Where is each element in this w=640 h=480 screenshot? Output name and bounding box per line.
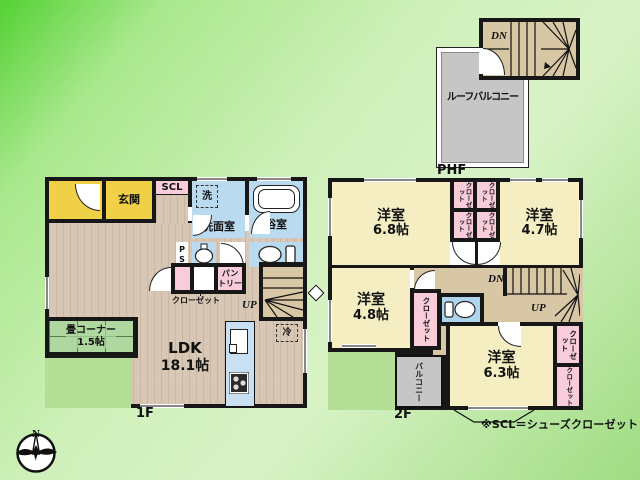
vent-diamond bbox=[308, 285, 325, 302]
stairs-1f bbox=[263, 267, 303, 317]
window bbox=[45, 277, 49, 309]
room-48: 洋室 4.8帖 bbox=[332, 268, 410, 348]
closet-2f: クローゼット bbox=[477, 212, 496, 238]
tatami-size-label: 1.5帖 bbox=[66, 337, 116, 349]
room-48-size: 4.8帖 bbox=[353, 309, 389, 324]
phf-dn-label: DN bbox=[491, 30, 507, 42]
window bbox=[303, 329, 307, 373]
closet-label: クローゼット bbox=[456, 182, 471, 208]
room-genkan: 玄関 bbox=[106, 181, 152, 219]
scl-label: SCL bbox=[162, 182, 183, 194]
window bbox=[342, 344, 376, 348]
window bbox=[328, 300, 332, 342]
kitchen-sink-icon bbox=[230, 329, 248, 354]
room-63-name: 洋室 bbox=[483, 350, 519, 366]
closet-label: クローゼット bbox=[421, 297, 430, 342]
window bbox=[364, 178, 416, 182]
floor-plan-canvas: ルーフバルコニー DN PHF 玄関 SCL 洗 bbox=[0, 0, 640, 480]
stove-icon bbox=[229, 372, 249, 394]
closet-label: クローゼット bbox=[456, 212, 471, 238]
fridge-label: 冷 bbox=[282, 328, 291, 338]
genkan-label: 玄関 bbox=[118, 194, 140, 207]
plan-1f-cutout bbox=[45, 358, 131, 408]
bathroom-door-gap bbox=[245, 215, 249, 231]
stairs-1f-up-label: UP bbox=[242, 299, 257, 311]
window bbox=[510, 178, 536, 182]
fridge-box: 冷 bbox=[276, 324, 298, 342]
closet-1f bbox=[175, 267, 190, 290]
stairs-1f-treads bbox=[263, 267, 303, 317]
room-47: 洋室 4.7帖 bbox=[500, 182, 579, 265]
phf-floor-label: PHF bbox=[437, 163, 466, 178]
washer-box: 洗 bbox=[196, 185, 218, 208]
ldk-label: LDK bbox=[161, 340, 210, 357]
plan-2f-cutout bbox=[328, 352, 395, 410]
tatami-label: 畳コーナー bbox=[66, 325, 116, 337]
washer-label: 洗 bbox=[202, 191, 212, 203]
closet-2f: クローゼット bbox=[454, 212, 473, 238]
room-68-size: 6.8帖 bbox=[373, 224, 409, 239]
window bbox=[579, 200, 583, 238]
bathtub-icon bbox=[253, 185, 300, 213]
tatami-corner: 畳コーナー 1.5帖 bbox=[49, 321, 133, 352]
hall-floor bbox=[156, 195, 188, 224]
compass-north-label: N bbox=[32, 428, 40, 440]
closet-2f: クローゼット bbox=[414, 293, 437, 346]
floor-2f-label: 2F bbox=[394, 407, 412, 422]
room-47-name: 洋室 bbox=[521, 208, 557, 224]
window bbox=[257, 177, 291, 181]
closet-2f: クローゼット bbox=[557, 326, 579, 363]
closet-2f: クローゼット bbox=[557, 367, 579, 406]
window bbox=[542, 178, 568, 182]
toilet-icon bbox=[442, 297, 480, 322]
room-48-name: 洋室 bbox=[353, 292, 389, 308]
room-63-size: 6.3帖 bbox=[483, 367, 519, 382]
balcony-2f: バルコニー bbox=[395, 355, 443, 408]
compass-icon: N bbox=[12, 424, 62, 478]
pantry: パン トリー bbox=[218, 267, 242, 290]
closet-row-open bbox=[194, 267, 214, 290]
plan-2f: 洋室 6.8帖 洋室 4.7帖 クローゼット クローゼット クローゼット クロー… bbox=[328, 178, 583, 410]
stairs-2f-dn-label: DN bbox=[488, 273, 504, 285]
balcony-label: バルコニー bbox=[414, 362, 423, 402]
stairs-2f-up-label: UP bbox=[531, 302, 546, 314]
closet-1f-label: クローゼット bbox=[165, 296, 227, 305]
plan-1f: 玄関 SCL 洗 洗面室 浴室 bbox=[45, 177, 307, 408]
closet-label: クローゼット bbox=[479, 182, 494, 208]
scl-footnote: ※SCL＝シューズクローゼット bbox=[481, 419, 638, 432]
closet-label: クローゼット bbox=[559, 326, 576, 363]
scl-shoe-closet: SCL bbox=[156, 181, 188, 194]
closet-label: クローゼット bbox=[479, 212, 494, 238]
ps-label: PS bbox=[178, 245, 187, 263]
room-68: 洋室 6.8帖 bbox=[332, 182, 450, 265]
washroom-door-gap bbox=[188, 207, 192, 221]
floor-1f-label: 1F bbox=[136, 406, 154, 421]
window bbox=[197, 177, 227, 181]
closet-label: クローゼット bbox=[564, 367, 571, 406]
ldk-size-label: 18.1帖 bbox=[161, 358, 210, 374]
room-47-size: 4.7帖 bbox=[521, 224, 557, 239]
roof-balcony-label: ルーフバルコニー bbox=[437, 92, 528, 104]
closet-2f: クローゼット bbox=[454, 182, 473, 208]
pantry-label-1: パン bbox=[218, 269, 242, 278]
room-toilet-2f bbox=[442, 297, 480, 322]
door-divider-wall bbox=[475, 242, 478, 265]
room-68-name: 洋室 bbox=[373, 208, 409, 224]
window bbox=[328, 198, 332, 236]
ldk-label-group: LDK 18.1帖 bbox=[140, 337, 230, 377]
closet-2f: クローゼット bbox=[477, 182, 496, 208]
pantry-label-2: トリー bbox=[218, 279, 242, 288]
